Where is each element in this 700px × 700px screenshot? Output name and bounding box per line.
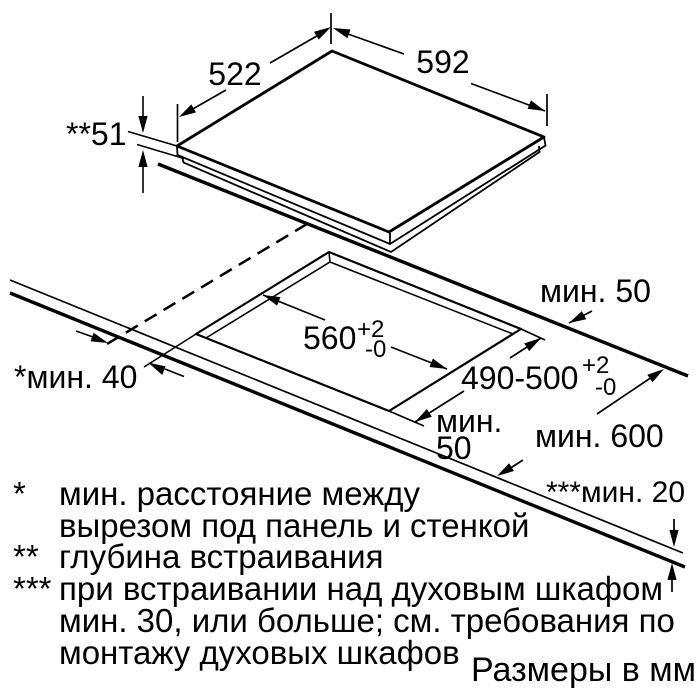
- svg-text:монтажу духовых шкафов: монтажу духовых шкафов: [59, 634, 460, 671]
- svg-text:-0: -0: [595, 374, 616, 401]
- svg-text:522: 522: [208, 56, 261, 92]
- svg-text:***мин. 20: ***мин. 20: [546, 476, 685, 509]
- svg-text:мин. 50: мин. 50: [540, 273, 651, 309]
- svg-text:-0: -0: [365, 336, 386, 363]
- svg-text:Размеры в мм: Размеры в мм: [471, 651, 696, 689]
- svg-text:490-500: 490-500: [461, 360, 578, 396]
- svg-text:мин. 600: мин. 600: [535, 418, 664, 454]
- svg-text:*: *: [13, 475, 26, 512]
- svg-text:592: 592: [416, 44, 469, 80]
- svg-text:**51: **51: [66, 116, 127, 152]
- svg-text:560: 560: [303, 320, 356, 356]
- svg-text:50: 50: [436, 430, 472, 466]
- svg-text:*мин. 40: *мин. 40: [14, 359, 137, 395]
- svg-text:***: ***: [13, 570, 52, 607]
